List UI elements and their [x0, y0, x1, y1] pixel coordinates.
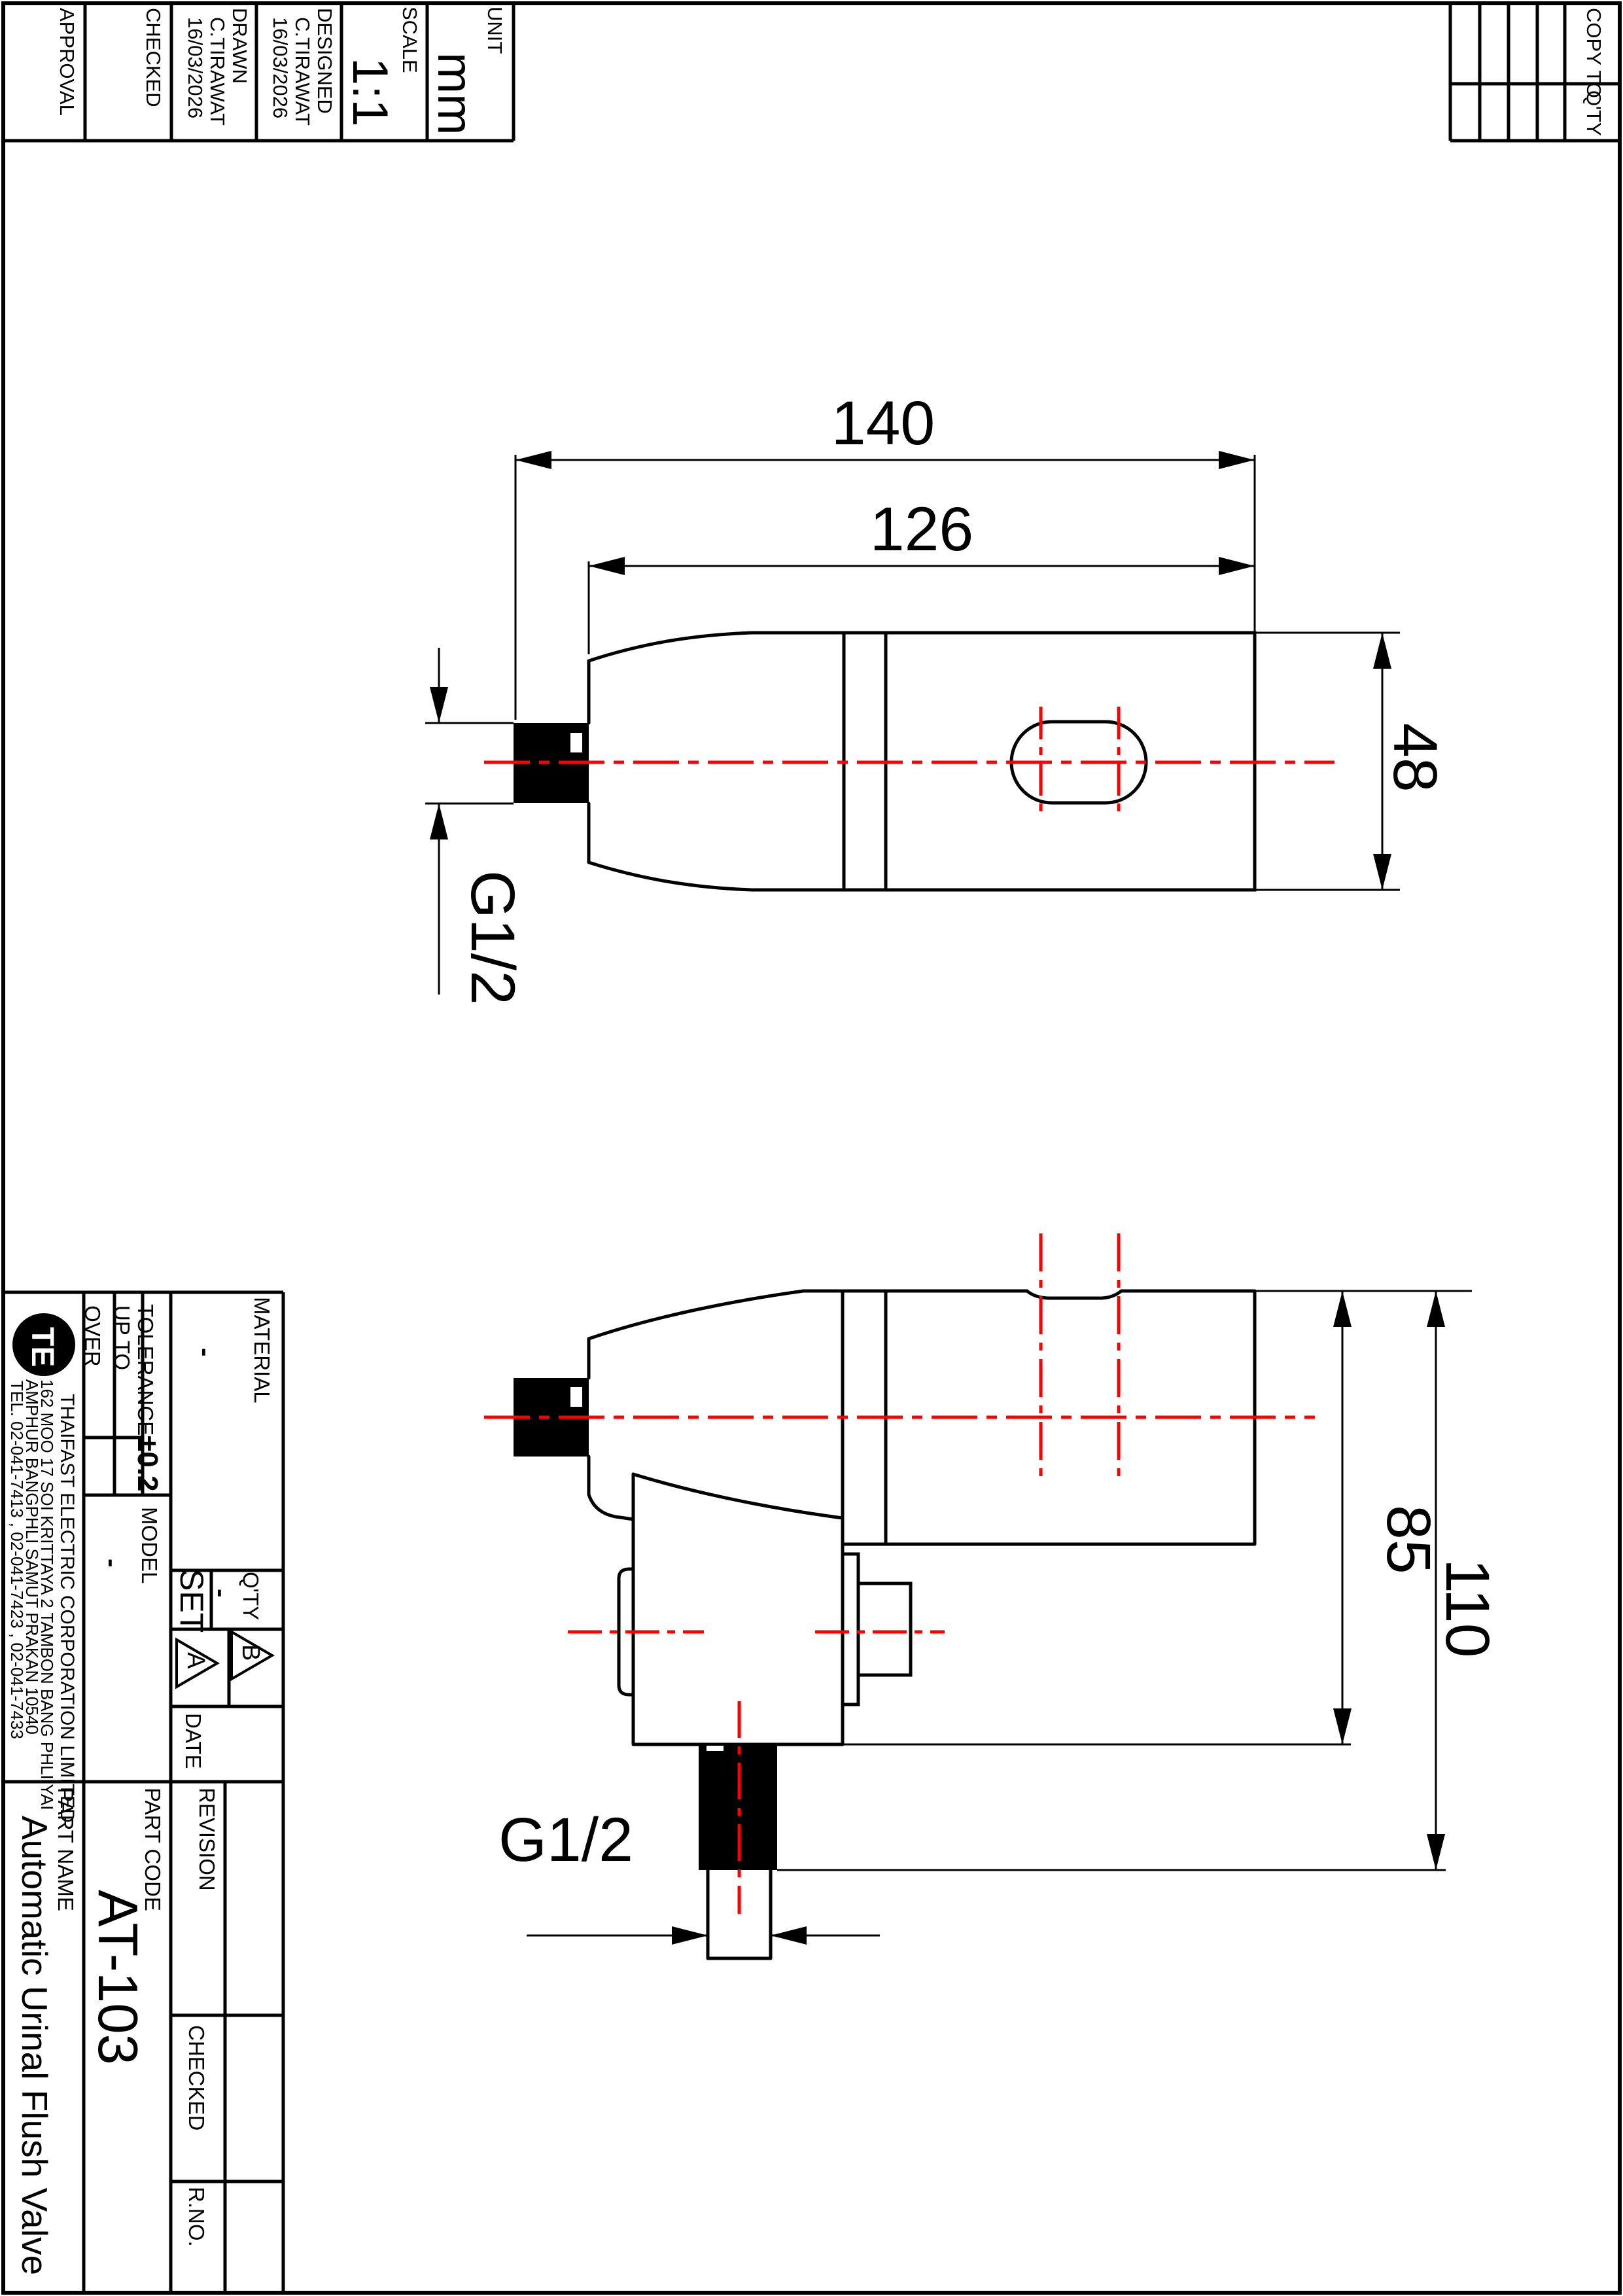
scale-label: SCALE	[400, 7, 420, 73]
company-name: THAIFAST ELECTRIC CORPORATION LIMITED	[57, 1394, 77, 1823]
qty-value: -	[208, 1589, 234, 1597]
dimension-lines	[425, 455, 1472, 1935]
up-to-label: UP TO	[111, 1305, 133, 1370]
tolerance-value: ±0.2	[131, 1436, 164, 1491]
rev-marker-b: B	[238, 1644, 263, 1661]
drawing-canvas	[0, 0, 1623, 2296]
centerlines	[484, 707, 1335, 1914]
model-label: MODEL	[139, 1507, 160, 1583]
qty-header-label: Q'TY	[1584, 90, 1604, 136]
checked-label: CHECKED	[143, 8, 164, 107]
dimension-arrowheads	[430, 451, 1445, 1945]
dim-body-height: 48	[1384, 723, 1446, 792]
company-logo-text: TE	[26, 1327, 58, 1367]
qty-unit: SET	[175, 1569, 208, 1633]
material-value: -	[192, 1348, 218, 1356]
over-label: OVER	[82, 1305, 103, 1367]
designed-label: DESIGNED	[315, 8, 335, 114]
sheet-frame	[3, 3, 1620, 2293]
rev-marker-a: A	[183, 1652, 208, 1669]
dim-overall-height: 110	[1436, 1559, 1498, 1657]
part-name-value: Automatic Urinal Flush Valve	[16, 1816, 52, 2275]
material-label: MATERIAL	[251, 1297, 273, 1404]
revision-label: REVISION	[196, 1788, 218, 1891]
unit-value: mm	[430, 52, 480, 135]
tolerance-cell: TOLERANCE±0.2	[133, 1304, 162, 1491]
designed-date: 16/03/2026	[270, 17, 290, 118]
drawn-name: C.TIRAWAT	[207, 17, 228, 126]
approval-label: APPROVAL	[57, 8, 77, 116]
date-label: DATE	[183, 1713, 204, 1769]
dim-inlet-thread: G1/2	[461, 870, 523, 1005]
r-no-label: R.NO.	[186, 2187, 207, 2247]
qty-label: Q'TY	[240, 1572, 262, 1620]
tolerance-label: TOLERANCE	[133, 1304, 158, 1436]
part-name-label: PART NAME	[55, 1788, 77, 1911]
company-address-3: TEL. 02-041-7413 , 02-041-7423 , 02-041-…	[9, 1381, 26, 1739]
dim-outlet-thread: G1/2	[498, 1809, 633, 1871]
drawn-label: DRAWN	[230, 8, 250, 84]
model-value: -	[99, 1559, 125, 1567]
checked-sign-label: CHECKED	[186, 2025, 207, 2130]
dim-mount-face-height: 85	[1377, 1505, 1439, 1574]
drawing-sheet: APPROVAL CHECKED DRAWN C.TIRAWAT 16/03/2…	[0, 0, 1623, 2296]
unit-label: UNIT	[485, 7, 505, 54]
dim-body-length: 126	[870, 499, 974, 561]
front-view-outline	[589, 1291, 1255, 1958]
part-code-value: AT-103	[90, 1890, 145, 2065]
drawn-date: 16/03/2026	[185, 17, 205, 118]
copy-to-label: COPY TO	[1584, 8, 1604, 98]
designed-name: C.TIRAWAT	[292, 17, 313, 126]
scale-value: 1:1	[345, 58, 394, 127]
dim-overall-length: 140	[831, 393, 935, 455]
